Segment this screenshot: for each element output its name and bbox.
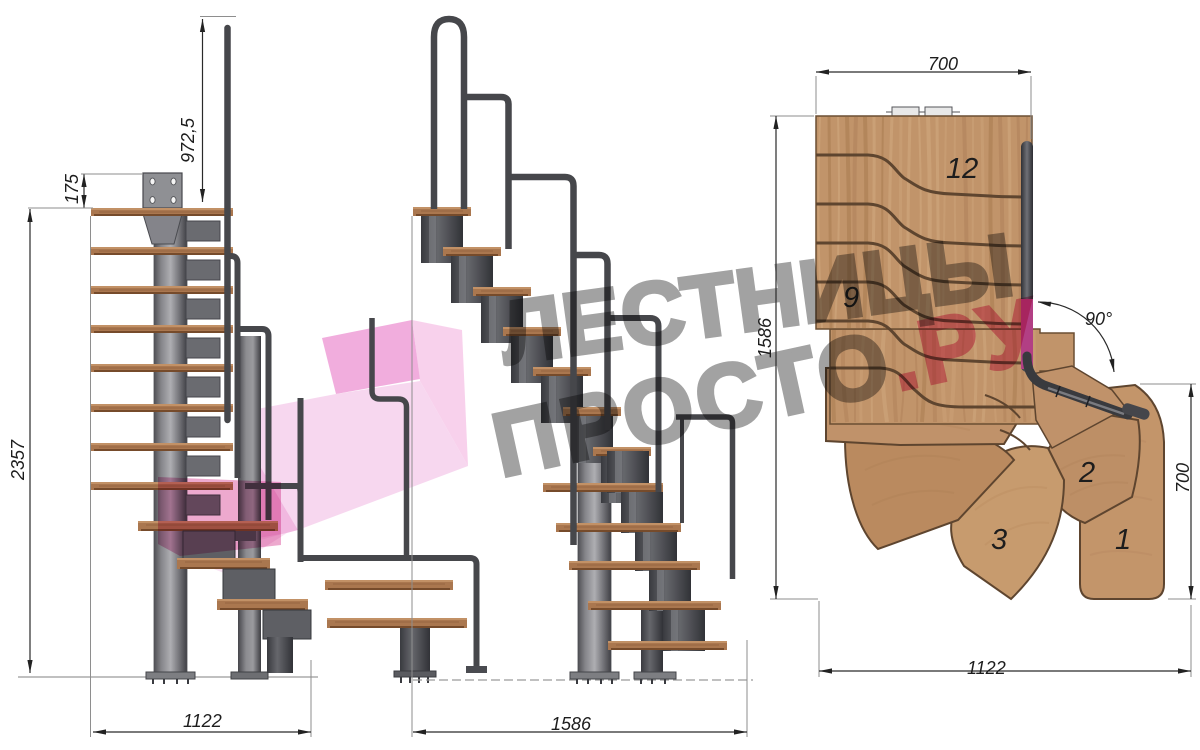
- svg-text:3: 3: [991, 524, 1007, 556]
- svg-text:90°: 90°: [1085, 309, 1112, 329]
- svg-text:2: 2: [1078, 457, 1095, 489]
- svg-text:1122: 1122: [967, 658, 1006, 678]
- svg-text:972,5: 972,5: [178, 117, 198, 163]
- svg-text:2357: 2357: [8, 439, 28, 481]
- svg-text:700: 700: [928, 54, 958, 74]
- svg-text:1586: 1586: [755, 317, 775, 358]
- svg-text:175: 175: [62, 173, 82, 204]
- svg-text:12: 12: [946, 153, 978, 185]
- svg-text:1: 1: [1115, 524, 1131, 556]
- svg-text:1586: 1586: [551, 714, 592, 734]
- svg-text:700: 700: [1173, 463, 1193, 493]
- svg-text:1122: 1122: [183, 711, 222, 731]
